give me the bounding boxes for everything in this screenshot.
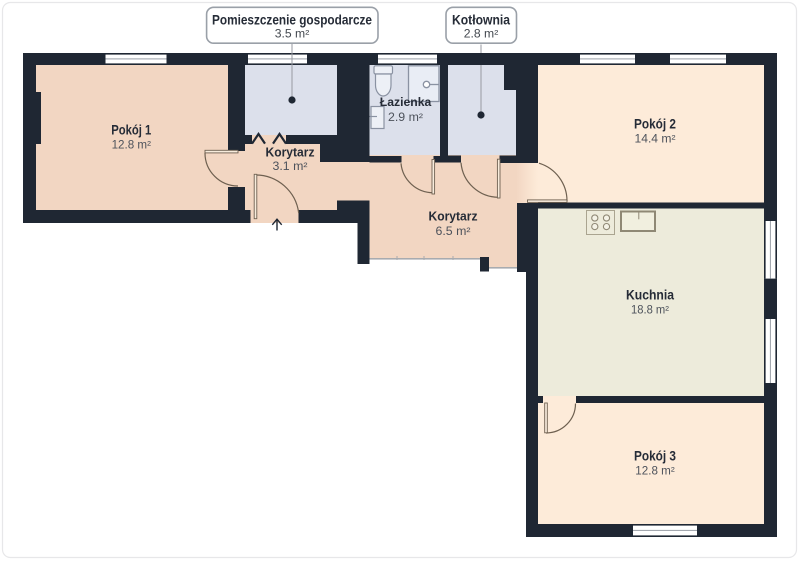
svg-text:Łazienka: Łazienka (380, 97, 432, 109)
svg-text:12.8 m²: 12.8 m² (635, 466, 675, 478)
svg-text:Pomieszczenie gospodarcze: Pomieszczenie gospodarcze (212, 11, 372, 27)
svg-text:Korytarz: Korytarz (429, 208, 478, 223)
svg-text:Pokój 1: Pokój 1 (111, 122, 151, 138)
svg-text:Korytarz: Korytarz (266, 144, 315, 159)
svg-text:6.5 m²: 6.5 m² (436, 226, 471, 238)
svg-text:18.8 m²: 18.8 m² (631, 305, 669, 317)
svg-text:14.4 m²: 14.4 m² (635, 134, 676, 146)
svg-text:Kotłownia: Kotłownia (452, 11, 510, 27)
svg-text:Pokój 3: Pokój 3 (634, 448, 676, 464)
svg-text:2.9 m²: 2.9 m² (388, 112, 423, 124)
svg-text:2.8 m²: 2.8 m² (464, 29, 499, 41)
svg-text:3.1 m²: 3.1 m² (273, 161, 308, 173)
svg-text:3.5 m²: 3.5 m² (275, 29, 310, 41)
svg-text:12.8 m²: 12.8 m² (112, 140, 152, 152)
svg-text:Kuchnia: Kuchnia (626, 287, 674, 303)
svg-text:Pokój 2: Pokój 2 (634, 116, 676, 132)
